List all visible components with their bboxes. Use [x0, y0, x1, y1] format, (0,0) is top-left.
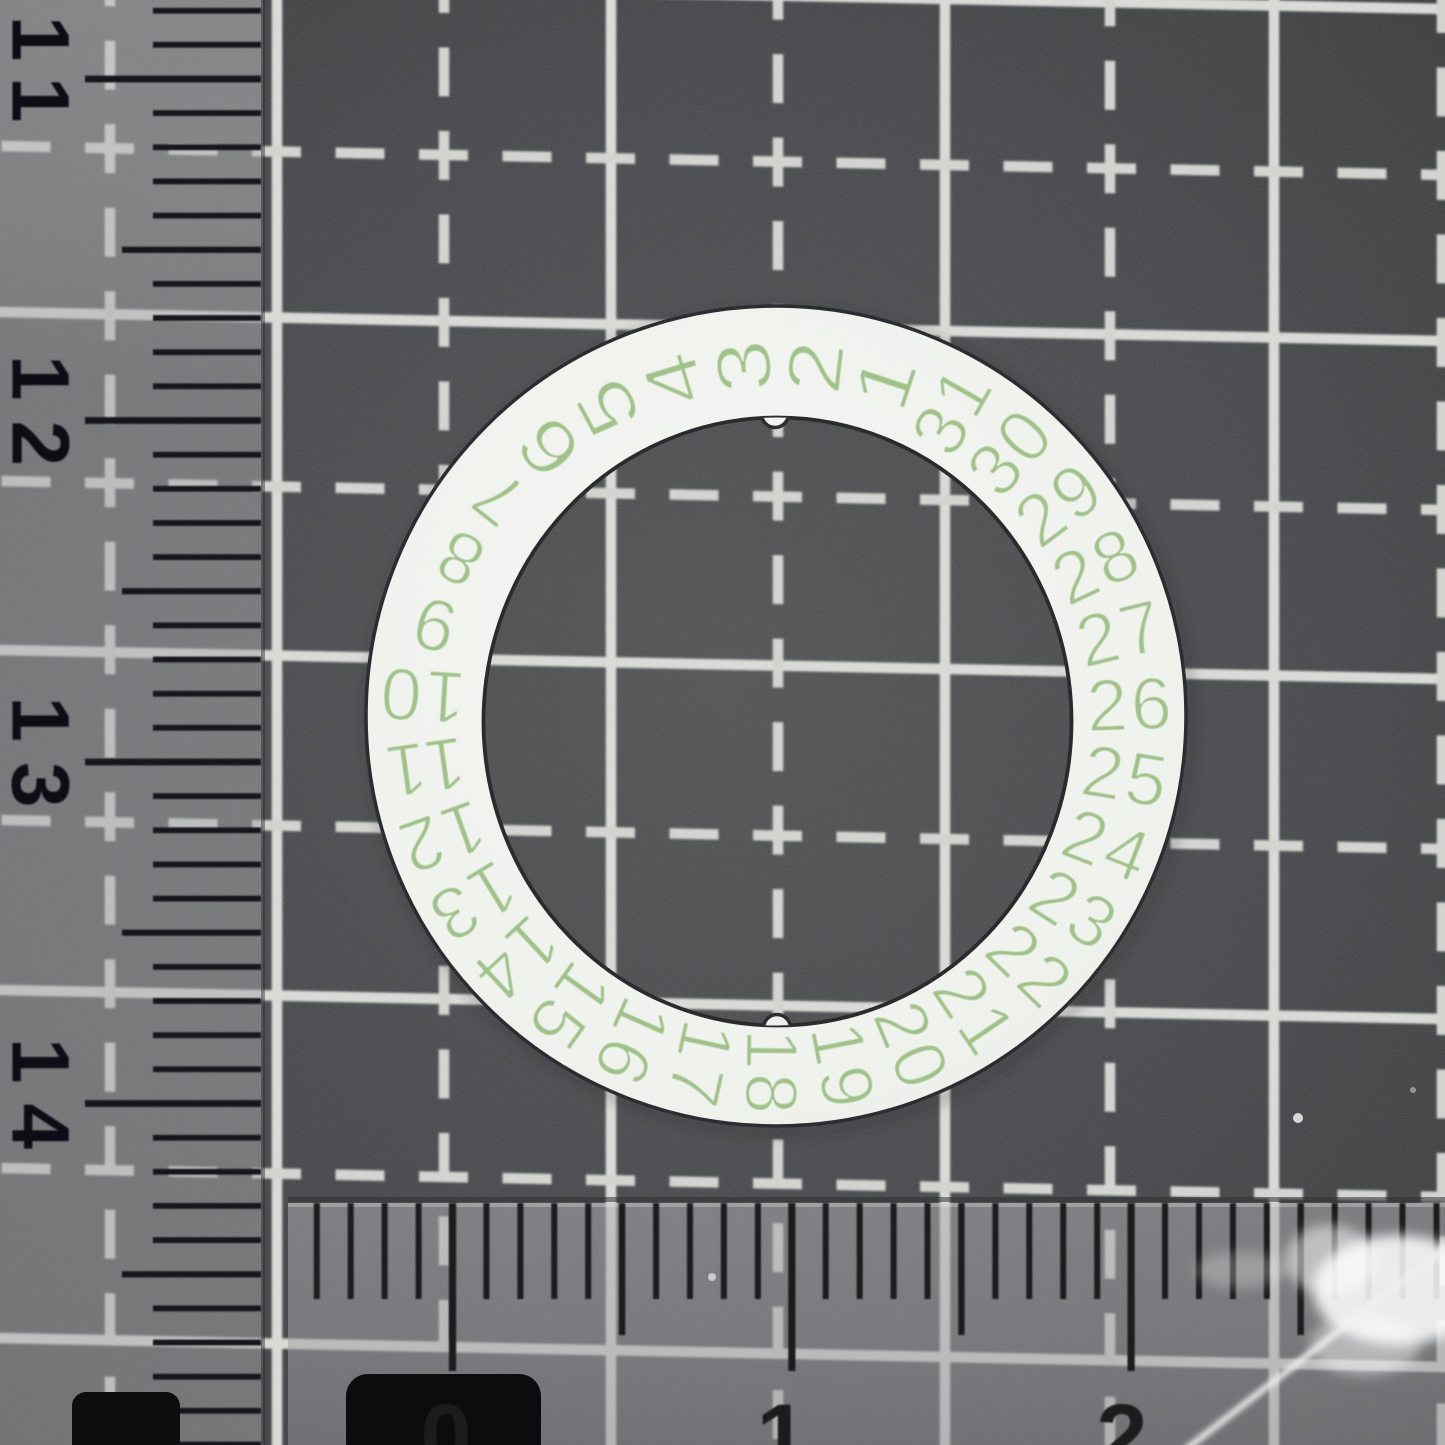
svg-text:2: 2 — [1096, 1386, 1147, 1445]
svg-text:11: 11 — [0, 16, 86, 143]
svg-text:14: 14 — [0, 1038, 86, 1169]
svg-text:1: 1 — [756, 1386, 807, 1445]
svg-text:0: 0 — [420, 1386, 471, 1445]
svg-text:12: 12 — [0, 355, 86, 486]
svg-text:13: 13 — [0, 696, 86, 827]
